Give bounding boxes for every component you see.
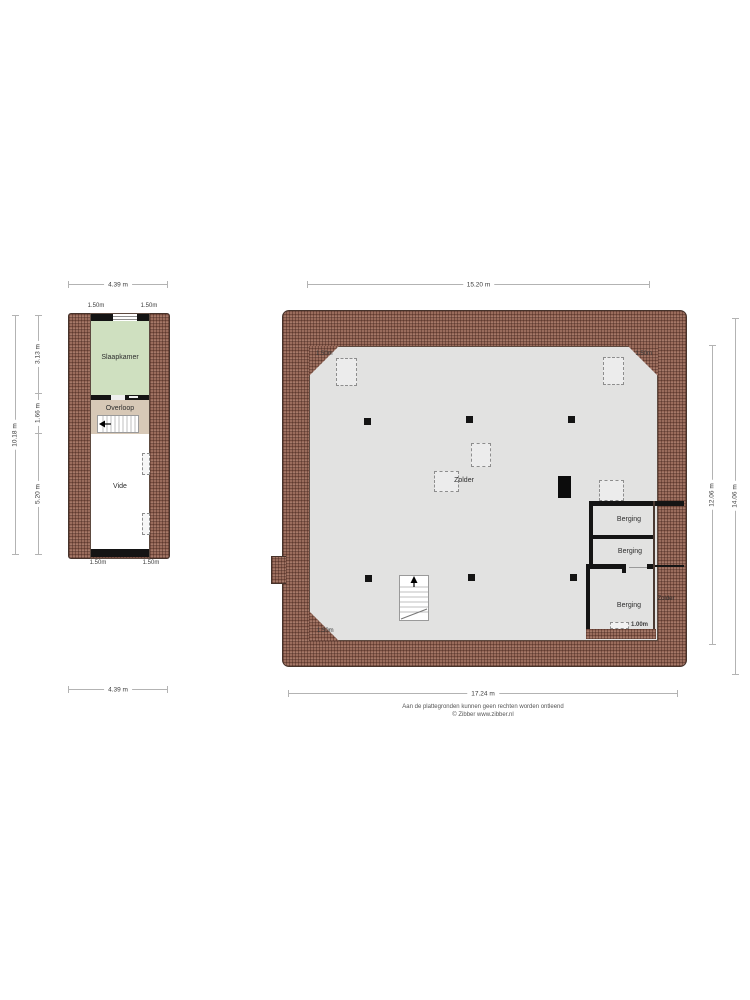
wall-notch [271,556,286,584]
dimension-label: 15.20 m [463,281,495,288]
berging-wall [653,565,684,567]
roof-strip [586,629,656,639]
room-label-zolder: Zolder [434,477,494,484]
staircase-large [399,575,429,621]
dimension-label: 17.24 m [467,690,499,697]
knee-wall-label: 1.50m [317,628,334,634]
room-label-berging-3: Berging [599,602,659,609]
staircase-small [97,415,139,433]
dimension-small-bottom: 4.39 m [68,689,168,690]
room-slaapkamer: Slaapkamer [91,321,149,395]
knee-wall-label: 1.00m [631,622,648,628]
room-label-vide: Vide [91,483,149,490]
column [568,416,575,423]
column [570,574,577,581]
dimension-label: 4.39 m [104,686,132,693]
skylight [599,480,624,501]
berging-wall [589,501,593,569]
room-label-berging-1: Berging [599,516,659,523]
room-label-zolder-side: Zolder [651,596,681,602]
berging-wall [589,535,653,539]
dimension-large-bottom: 17.24 m [288,693,678,694]
berging-wall [589,501,684,506]
dimension-small-top: 4.39 m [68,284,168,285]
room-overloop: Overloop [91,400,149,434]
column [364,418,371,425]
small-plan-room-column: Slaapkamer Overloop [91,314,149,558]
dimension-tick [35,393,42,394]
skylight [471,443,491,467]
small-plan-roof-area: Slaapkamer Overloop [68,313,170,559]
floorplan-page: 4.39 m 1.50m 1.50m Slaapkamer Overloop [0,0,750,1000]
dimension-label: 1.66 m [35,400,42,426]
berging-wall [622,564,626,573]
dimension-label: 4.39 m [104,281,132,288]
door-opening [629,567,647,568]
dimension-large-right-inner: 12.06 m [712,345,713,645]
dimension-label: 10.18 m [12,420,19,450]
roof-corner [309,611,339,641]
skylight [603,357,624,385]
roof-window [142,453,150,475]
column [365,575,372,582]
footer-disclaimer: Aan de plattegronden kunnen geen rechten… [283,703,683,711]
room-berging-3 [590,569,653,629]
dimension-label: 3.13 m [35,341,42,367]
room-label-slaapkamer: Slaapkamer [91,354,149,361]
dimension-small-left-total: 10.18 m [15,315,16,555]
door-leaf [129,396,138,398]
knee-wall-label: 1.50m [139,560,163,566]
roof-window [142,513,150,535]
knee-wall-label: 1.50m [137,303,161,309]
knee-wall-label: 1.50m [316,351,333,357]
room-label-overloop: Overloop [91,405,149,412]
footer-copyright: © Zibber www.zibber.nl [283,711,683,719]
skylight [336,358,357,386]
dimension-label: 12.06 m [709,480,716,510]
knee-wall-label: 1.50m [86,560,110,566]
dimension-large-right-outer: 14.06 m [735,318,736,675]
large-plan-roof-area: 1.50m 1.50m 1.50m Zolder [282,310,687,667]
dimension-tick [35,433,42,434]
low-wall-marker [610,622,629,629]
window [113,314,137,321]
exterior-wall [91,549,149,557]
knee-wall-label: 1.50m [84,303,108,309]
dimension-large-top: 15.20 m [307,284,650,285]
dimension-small-left-segments: 3.13 m 1.66 m 5.20 m [38,315,39,555]
column [466,416,473,423]
dimension-label: 14.06 m [732,481,739,511]
room-label-berging-2: Berging [600,548,660,555]
room-vide: Vide [91,434,149,549]
dimension-label: 5.20 m [35,481,42,507]
column [468,574,475,581]
footer: Aan de plattegronden kunnen geen rechten… [283,703,683,719]
chimney [558,476,571,498]
knee-wall-label: 1.50m [635,351,652,357]
berging-wall [586,564,590,629]
